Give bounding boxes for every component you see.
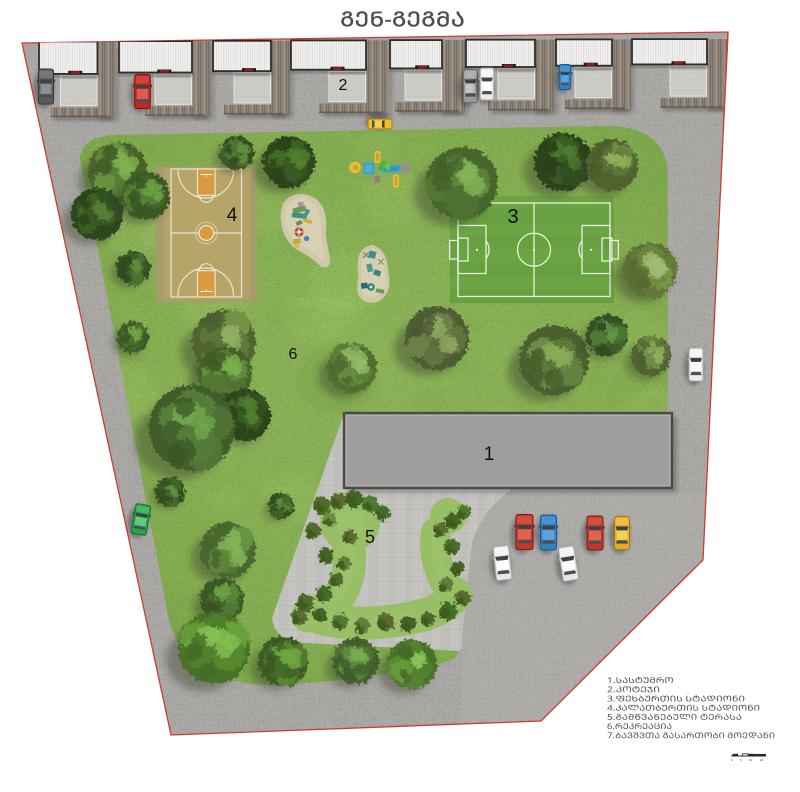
svg-text:4: 4 [227,205,238,226]
svg-text:1: 1 [484,444,495,465]
svg-text:3: 3 [507,206,518,228]
svg-text:10: 10 [749,758,753,762]
svg-text:2: 2 [339,77,348,94]
svg-text:20: 20 [760,758,764,762]
svg-text:5: 5 [365,527,375,547]
svg-text:6: 6 [289,346,298,363]
